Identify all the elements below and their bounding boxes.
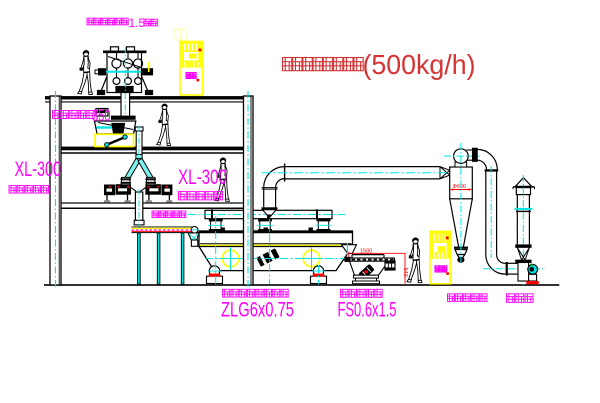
svg-text:1.5: 1.5 <box>129 16 146 30</box>
svg-text:350: 350 <box>92 107 111 125</box>
svg-text:XL-300: XL-300 <box>15 158 62 181</box>
svg-text:XL-300: XL-300 <box>178 166 227 189</box>
svg-text:FS0.6x1.5: FS0.6x1.5 <box>338 298 397 322</box>
svg-text:(500kg/h): (500kg/h) <box>363 49 476 80</box>
svg-text:540: 540 <box>402 268 408 277</box>
svg-text:ZLG6x0.75: ZLG6x0.75 <box>221 298 294 322</box>
